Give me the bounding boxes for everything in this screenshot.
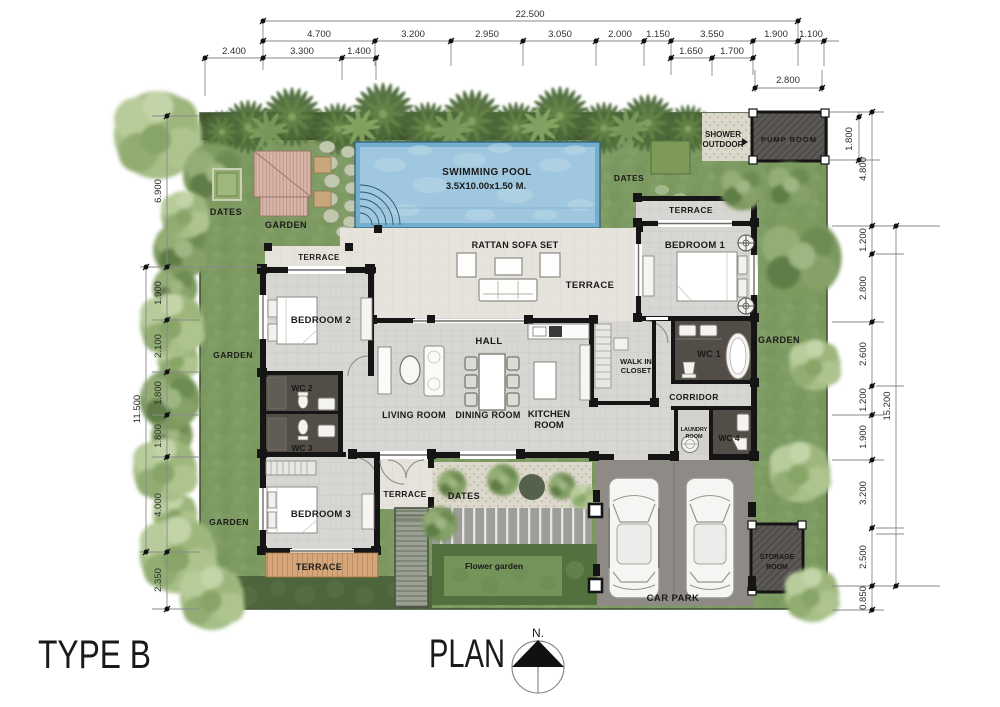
svg-text:PUMP ROOM: PUMP ROOM	[761, 135, 817, 144]
svg-text:3.050: 3.050	[548, 29, 572, 40]
svg-text:ROOM: ROOM	[685, 434, 703, 440]
svg-text:TERRACE: TERRACE	[566, 280, 615, 291]
svg-text:DINING ROOM: DINING ROOM	[455, 410, 520, 420]
svg-text:2.800: 2.800	[858, 276, 869, 300]
svg-text:SWIMMING POOL: SWIMMING POOL	[442, 167, 532, 178]
svg-text:SHOWER: SHOWER	[705, 130, 741, 139]
svg-text:DATES: DATES	[210, 207, 242, 217]
svg-text:1.900: 1.900	[764, 29, 788, 40]
svg-text:1.100: 1.100	[799, 29, 823, 40]
svg-text:2.000: 2.000	[608, 29, 632, 40]
svg-text:BEDROOM 3: BEDROOM 3	[291, 509, 351, 520]
svg-text:GARDEN: GARDEN	[209, 517, 249, 527]
svg-text:2.600: 2.600	[858, 342, 869, 366]
svg-text:WC 4: WC 4	[718, 433, 740, 443]
svg-text:15.200: 15.200	[882, 391, 893, 420]
svg-text:HALL: HALL	[475, 336, 502, 347]
svg-text:PLAN: PLAN	[429, 632, 505, 676]
svg-text:STORAGE: STORAGE	[760, 554, 795, 561]
svg-text:1.400: 1.400	[347, 46, 371, 57]
svg-text:6.900: 6.900	[153, 179, 164, 203]
svg-text:2.350: 2.350	[153, 568, 164, 592]
svg-text:1.800: 1.800	[153, 381, 164, 405]
svg-text:1.800: 1.800	[844, 127, 855, 151]
svg-text:0.850: 0.850	[858, 586, 869, 610]
svg-text:3.300: 3.300	[290, 46, 314, 57]
svg-text:1.650: 1.650	[679, 46, 703, 57]
svg-text:GARDEN: GARDEN	[213, 350, 253, 360]
svg-text:4.000: 4.000	[153, 493, 164, 517]
svg-text:OUTDOOR: OUTDOOR	[703, 140, 744, 149]
svg-text:DATES: DATES	[614, 173, 644, 183]
svg-text:BEDROOM 2: BEDROOM 2	[291, 315, 351, 326]
svg-text:WALK IN: WALK IN	[620, 357, 652, 366]
svg-text:GARDEN: GARDEN	[265, 220, 307, 230]
svg-text:TERRACE: TERRACE	[298, 253, 340, 262]
svg-text:2.950: 2.950	[475, 29, 499, 40]
svg-text:DATES: DATES	[448, 491, 480, 501]
svg-text:LAUNDRY: LAUNDRY	[681, 427, 708, 433]
svg-text:BEDROOM 1: BEDROOM 1	[665, 240, 726, 251]
svg-text:ROOM: ROOM	[766, 564, 788, 571]
svg-text:1.800: 1.800	[153, 424, 164, 448]
svg-text:1.150: 1.150	[646, 29, 670, 40]
svg-text:N.: N.	[532, 626, 544, 640]
svg-text:TYPE B: TYPE B	[38, 633, 151, 677]
svg-text:1.200: 1.200	[858, 388, 869, 412]
svg-text:TERRACE: TERRACE	[669, 205, 713, 215]
svg-text:3.5X10.00x1.50 M.: 3.5X10.00x1.50 M.	[446, 181, 526, 192]
svg-text:Flower garden: Flower garden	[465, 561, 523, 571]
svg-text:WC 1: WC 1	[697, 349, 721, 360]
svg-text:2.100: 2.100	[153, 334, 164, 358]
svg-text:LIVING ROOM: LIVING ROOM	[382, 410, 446, 420]
svg-text:4.700: 4.700	[307, 29, 331, 40]
svg-text:11.500: 11.500	[132, 395, 143, 423]
svg-text:1.900: 1.900	[153, 281, 164, 305]
svg-text:1.700: 1.700	[720, 46, 744, 57]
svg-text:GARDEN: GARDEN	[758, 335, 800, 345]
svg-text:22.500: 22.500	[515, 9, 544, 20]
svg-text:1.200: 1.200	[858, 228, 869, 252]
svg-text:3.200: 3.200	[401, 29, 425, 40]
svg-text:RATTAN SOFA SET: RATTAN SOFA SET	[472, 240, 559, 250]
svg-text:KITCHEN: KITCHEN	[528, 409, 570, 420]
svg-text:2.400: 2.400	[222, 46, 246, 57]
svg-text:1.900: 1.900	[858, 425, 869, 449]
svg-text:4.800: 4.800	[858, 157, 869, 181]
svg-text:2.500: 2.500	[858, 545, 869, 569]
svg-text:TERRACE: TERRACE	[296, 562, 342, 572]
svg-text:CAR PARK: CAR PARK	[647, 593, 700, 604]
svg-text:CORRIDOR: CORRIDOR	[669, 392, 718, 402]
svg-text:TERRACE: TERRACE	[383, 489, 426, 499]
svg-text:3.200: 3.200	[858, 481, 869, 505]
svg-text:WC 2: WC 2	[291, 383, 313, 393]
svg-text:ROOM: ROOM	[534, 420, 564, 431]
svg-text:2.800: 2.800	[776, 75, 800, 86]
svg-text:3.550: 3.550	[700, 29, 724, 40]
svg-text:CLOSET: CLOSET	[621, 366, 652, 375]
svg-text:WC 3: WC 3	[291, 443, 313, 453]
